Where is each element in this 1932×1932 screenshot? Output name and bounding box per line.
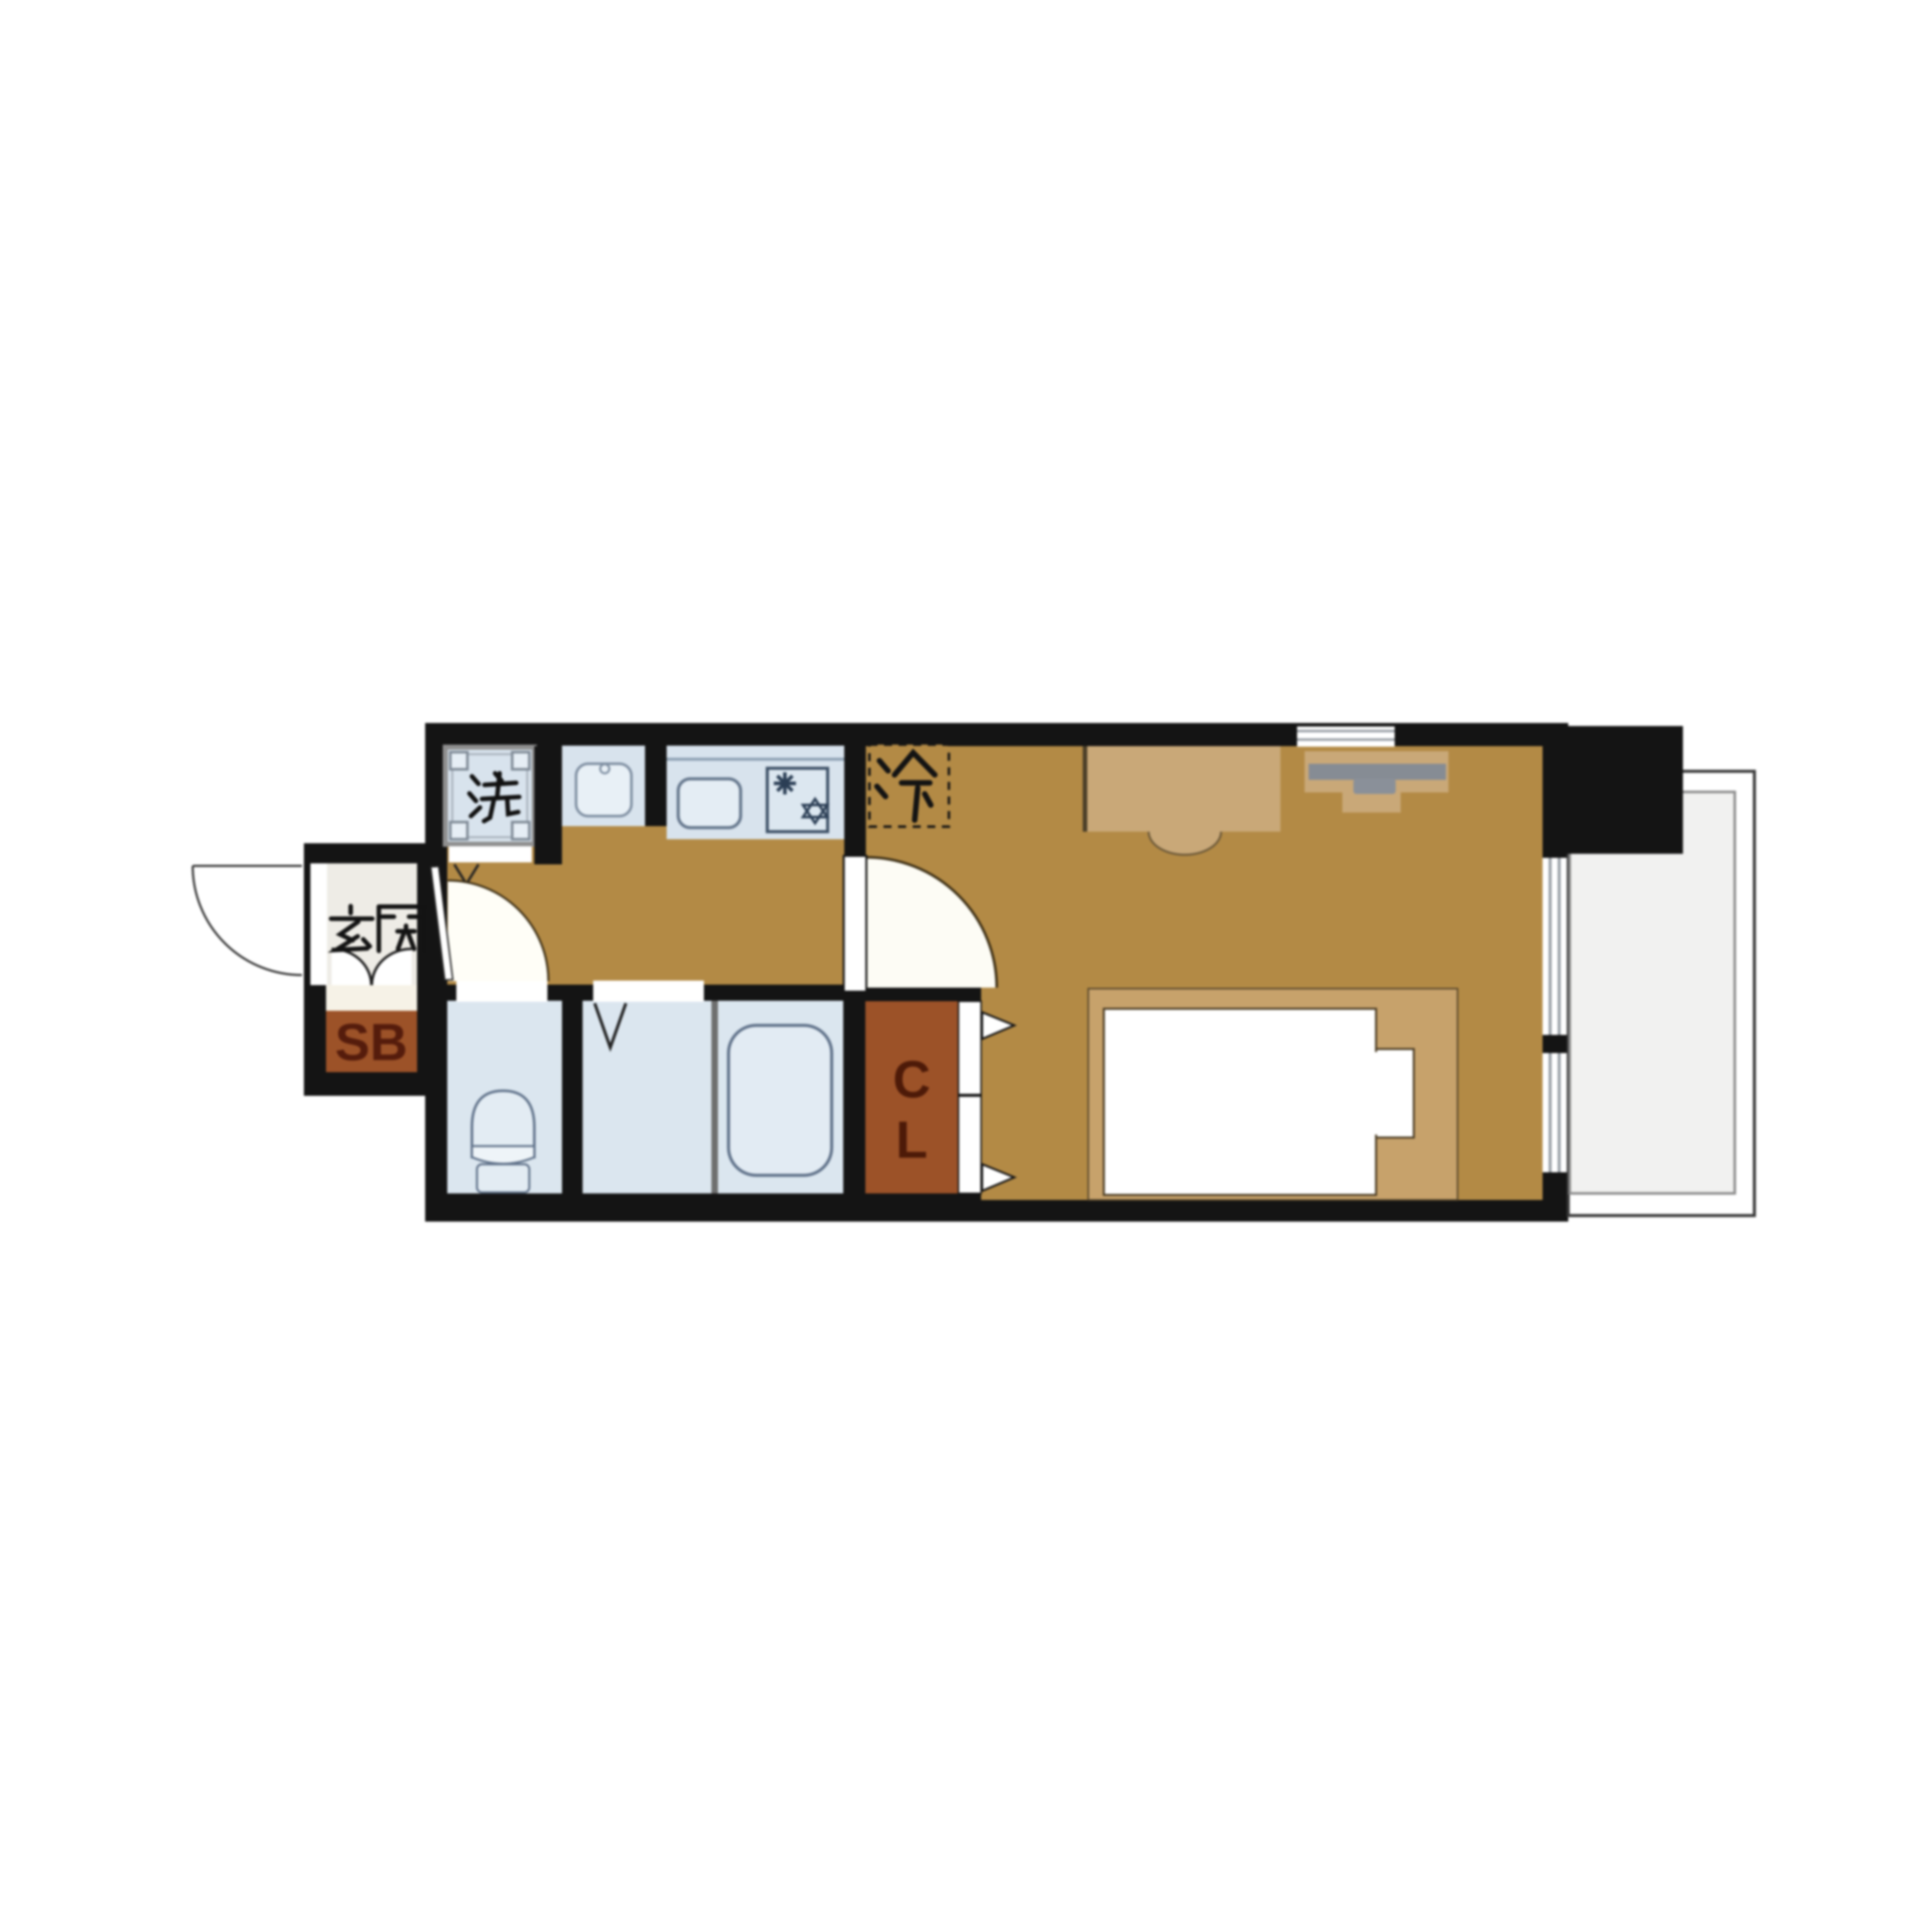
svg-text:C: C — [893, 1051, 930, 1109]
svg-text:L: L — [896, 1111, 928, 1169]
svg-text:SB: SB — [335, 1013, 408, 1072]
